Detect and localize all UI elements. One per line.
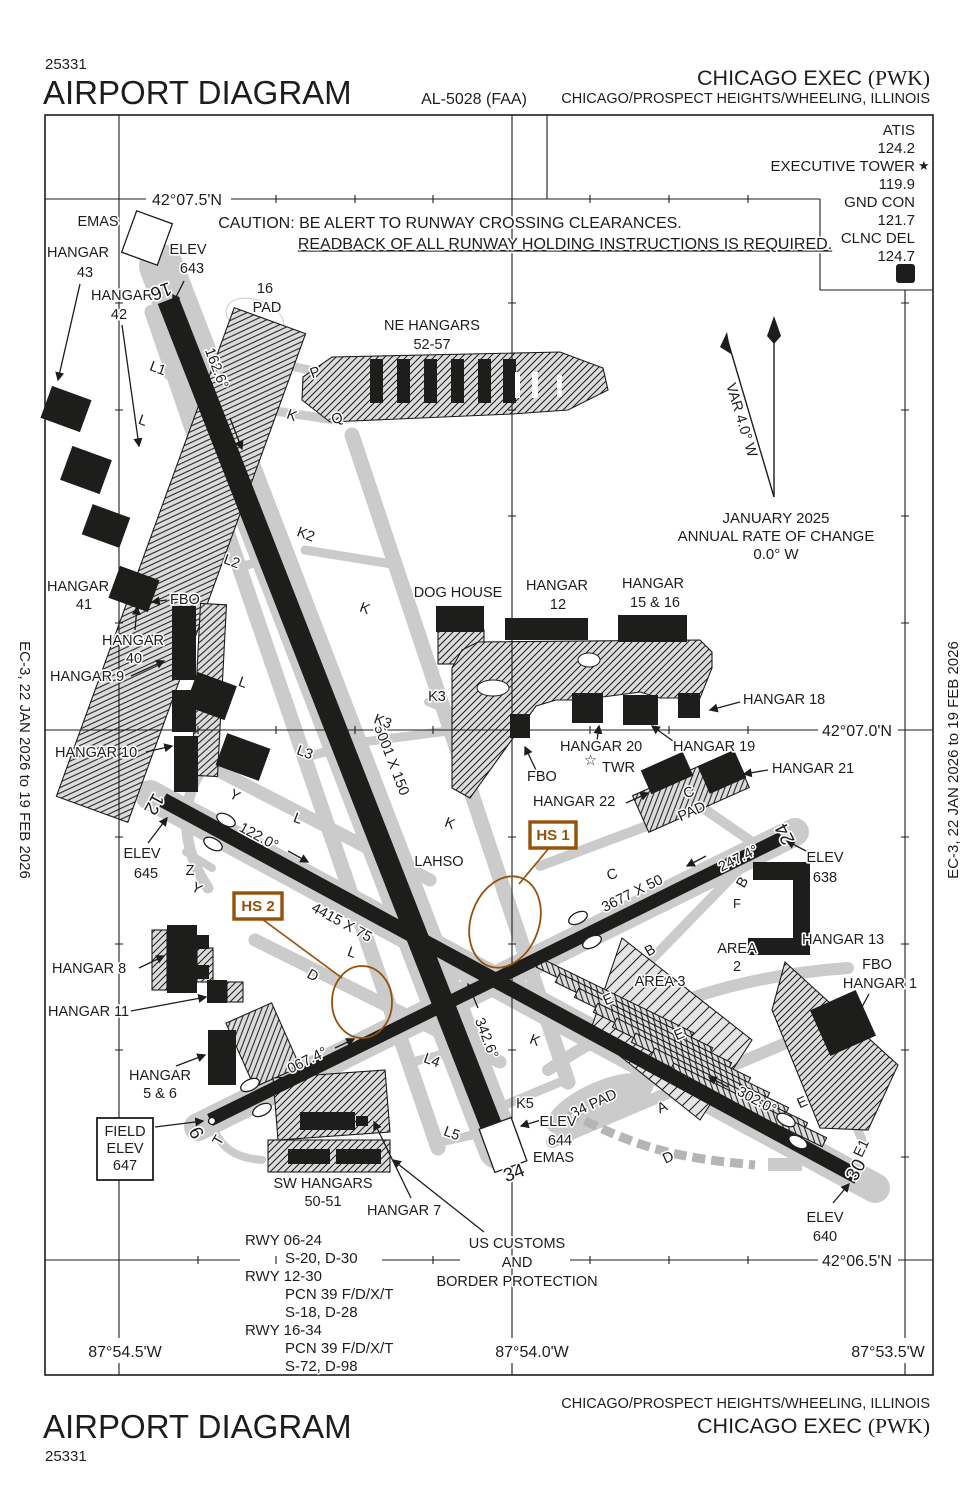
page-title: AIRPORT DIAGRAM <box>43 74 352 111</box>
runway-data-row: PCN 39 F/D/X/T <box>285 1340 393 1357</box>
hangar-11-label: HANGAR 11 <box>48 1004 129 1020</box>
chart-number-top: 25331 <box>45 56 87 73</box>
clearance-frequency: 124.7 <box>877 248 915 265</box>
emas-south-label: EMAS <box>533 1150 574 1166</box>
fbo-hangar-1-label-2: HANGAR 1 <box>843 976 917 992</box>
caution-line2: READBACK OF ALL RUNWAY HOLDING INSTRUCTI… <box>298 236 832 253</box>
taxiway-stub <box>768 1158 802 1171</box>
pad-16-label-1: 16 <box>257 281 273 297</box>
fbo-west-label: FBO <box>170 592 200 608</box>
page-header: 25331 AIRPORT DIAGRAM AL-5028 (FAA) CHIC… <box>43 56 930 111</box>
hangar-8-label: HANGAR 8 <box>52 961 126 977</box>
hangar-42-label-2: 42 <box>111 307 127 323</box>
footer-city-line: CHICAGO/PROSPECT HEIGHTS/WHEELING, ILLIN… <box>561 1396 930 1412</box>
area-2-label-2: 2 <box>733 959 741 975</box>
fbo-hangar-1-label-1: FBO <box>862 957 892 973</box>
runway-data-row: RWY 12-30 <box>245 1268 322 1285</box>
elev-643-value: 643 <box>180 261 204 277</box>
lon-87-53-5-label: 87°53.5'W <box>851 1344 925 1361</box>
runway-data-row: S-18, D-28 <box>285 1304 358 1321</box>
runway-data-block: RWY 06-24 S-20, D-30 RWY 12-30 PCN 39 F/… <box>245 1232 393 1375</box>
elev-640-value: 640 <box>813 1229 837 1245</box>
hangar-12-label-2: 12 <box>550 597 566 613</box>
variation-label: VAR 4.0° W <box>722 381 760 459</box>
hotspot-2-label: HS 2 <box>241 898 274 915</box>
city-line: CHICAGO/PROSPECT HEIGHTS/WHEELING, ILLIN… <box>561 91 930 107</box>
hangar-22-label: HANGAR 22 <box>533 794 615 810</box>
fbo-central-building <box>510 714 530 738</box>
hangar-13-building <box>748 862 810 955</box>
al-number: AL-5028 (FAA) <box>421 91 527 108</box>
tower-label: TWR <box>602 760 635 776</box>
airport-title: CHICAGO EXEC(PWK) <box>697 66 930 90</box>
hangar-40-label-2: 40 <box>126 651 142 667</box>
tower-frequency: 119.9 <box>879 176 915 193</box>
runway-data-row: S-72, D-98 <box>285 1358 358 1375</box>
taxiway-c-pad-connector <box>700 806 758 846</box>
runway-data-row: RWY 16-34 <box>245 1322 322 1339</box>
atis-label: ATIS <box>883 122 915 139</box>
field-elev-line1: FIELD <box>104 1124 145 1140</box>
hangar-19-building <box>623 695 658 725</box>
pad-16-label-2: PAD <box>253 300 282 316</box>
hangar-41-label-1: HANGAR <box>47 579 109 595</box>
ne-hangars-label-1: NE HANGARS <box>384 318 480 334</box>
twy-d-label: D <box>660 1148 676 1167</box>
lat-42-07-0-label: 42°07.0'N <box>822 723 892 740</box>
compass-rose: VAR 4.0° W JANUARY 2025 ANNUAL RATE OF C… <box>678 316 875 563</box>
twy-z-label: Z <box>186 863 195 879</box>
dog-house-label: DOG HOUSE <box>414 585 503 601</box>
footer-airport-title: CHICAGO EXEC(PWK) <box>697 1414 930 1438</box>
hangar-5-6-label-1: HANGAR <box>129 1068 191 1084</box>
hangar-20-label: HANGAR 20 <box>560 739 642 755</box>
hangar-43-label-2: 43 <box>77 265 93 281</box>
ne-hangars-label-2: 52-57 <box>413 337 450 353</box>
ground-frequency: 121.7 <box>877 212 915 229</box>
emas-north-label: EMAS <box>77 214 118 230</box>
twy-a-label: A <box>655 1099 671 1118</box>
compass-rate-label: ANNUAL RATE OF CHANGE <box>678 528 875 545</box>
hangar-15-16-label-2: 15 & 16 <box>630 595 680 611</box>
twy-k3-label: K3 <box>428 689 446 705</box>
hangar-15-16-label-1: HANGAR <box>622 576 684 592</box>
sw-hangars-label-1: SW HANGARS <box>273 1176 372 1192</box>
twy-b-label: B <box>734 874 753 890</box>
elev-644-word: ELEV <box>539 1114 576 1130</box>
hangar-43-label-1: HANGAR <box>47 245 109 261</box>
airport-name: CHICAGO EXEC <box>697 66 862 90</box>
hangar-41-label-2: 41 <box>76 597 92 613</box>
twy-l-label: L <box>345 944 358 962</box>
tower-star-symbol: ☆ <box>584 753 597 769</box>
lat-42-06-5-label: 42°06.5'N <box>822 1253 892 1270</box>
runway-data-row: S-20, D-30 <box>285 1250 358 1267</box>
tower-star-icon: ★ <box>918 158 930 173</box>
hangar-21-label: HANGAR 21 <box>772 761 854 777</box>
twy-k-label: K <box>527 1032 542 1050</box>
elev-643-word: ELEV <box>169 242 206 258</box>
elev-638-value: 638 <box>813 870 837 886</box>
chart-number-bottom: 25331 <box>45 1448 87 1465</box>
airport-diagram-canvas: HS 1 HS 2 FIELD ELEV 647 EMAS HANGAR 43 … <box>0 0 978 1500</box>
field-elevation-box: FIELD ELEV 647 <box>97 1118 153 1180</box>
footer-airport-name: CHICAGO EXEC <box>697 1414 862 1438</box>
elev-645-value: 645 <box>134 866 158 882</box>
runway-6-threshold-dot <box>209 1118 216 1125</box>
apron-cutout <box>477 680 509 696</box>
variation-arrowhead-icon <box>720 332 731 354</box>
footer-airport-identifier: (PWK) <box>868 1414 930 1438</box>
customs-label-3: BORDER PROTECTION <box>436 1274 597 1290</box>
fbo-central-label: FBO <box>527 769 557 785</box>
elev-644-value: 644 <box>548 1133 572 1149</box>
ground-control-label: GND CON <box>844 194 915 211</box>
elev-638-word: ELEV <box>806 850 843 866</box>
twy-k5-label: K5 <box>516 1096 534 1112</box>
caution-note: CAUTION: BE ALERT TO RUNWAY CROSSING CLE… <box>218 215 832 253</box>
north-arrowhead-icon <box>767 316 781 344</box>
twy-f-label: F <box>733 896 741 911</box>
elev-645-word: ELEV <box>123 846 160 862</box>
twy-e1-label: E1 <box>851 1137 873 1160</box>
twy-c-label: C <box>605 866 620 885</box>
taxiway-k5 <box>505 1080 565 1105</box>
lon-87-54-5-label: 87°54.5'W <box>88 1344 162 1361</box>
twy-k2-label: K2 <box>295 524 317 545</box>
compass-date: JANUARY 2025 <box>722 510 829 527</box>
hangar-42-label-1: HANGAR <box>91 288 153 304</box>
tower-name-label: EXECUTIVE TOWER <box>771 158 916 175</box>
sw-hangars-label-2: 50-51 <box>304 1194 341 1210</box>
apron-cutout <box>578 653 600 667</box>
dog-house-building <box>436 606 484 632</box>
page-footer: AIRPORT DIAGRAM 25331 CHICAGO/PROSPECT H… <box>43 1396 930 1465</box>
field-elev-line3: 647 <box>113 1158 137 1174</box>
twy-k-label: K <box>442 815 457 833</box>
footer-title: AIRPORT DIAGRAM <box>43 1408 352 1445</box>
airport-identifier: (PWK) <box>868 66 930 90</box>
lat-42-07-5-label: 42°07.5'N <box>152 192 222 209</box>
hangar-20-building <box>572 693 603 723</box>
lon-87-54-0-label: 87°54.0'W <box>495 1344 569 1361</box>
hangar-5-6-label-2: 5 & 6 <box>143 1086 177 1102</box>
atis-frequency: 124.2 <box>877 140 915 157</box>
hangar-10-label: HANGAR 10 <box>55 745 137 761</box>
datis-icon-letter: D <box>900 267 910 283</box>
customs-label-2: AND <box>502 1255 533 1271</box>
compass-rate-value: 0.0° W <box>753 546 799 563</box>
runway-data-row: RWY 06-24 <box>245 1232 322 1249</box>
comm-frequencies: ATIS 124.2 EXECUTIVE TOWER ★ 119.9 GND C… <box>771 122 930 283</box>
hangar-7-label: HANGAR 7 <box>367 1203 441 1219</box>
hangar-12-label-1: HANGAR <box>526 578 588 594</box>
hangar-12-building <box>505 618 588 640</box>
hangar-13-label: HANGAR 13 <box>802 932 884 948</box>
right-margin-effectivity-note: EC-3, 22 JAN 2026 to 19 FEB 2026 <box>945 641 962 879</box>
hangar-15-16-building <box>618 615 687 642</box>
twy-l-label: L <box>136 412 149 430</box>
hangar-40-label-1: HANGAR <box>102 633 164 649</box>
twy-k-label: K <box>357 600 372 618</box>
hotspot-1-label: HS 1 <box>536 827 569 844</box>
hangar-5-6-building <box>208 1030 236 1085</box>
hangar-18-building <box>678 693 700 718</box>
hangar-9-label: HANGAR 9 <box>50 669 124 685</box>
area-2-label-1: AREA <box>717 941 757 957</box>
elev-640-word: ELEV <box>806 1210 843 1226</box>
hangars-40-9-10 <box>172 606 198 792</box>
hangar-11-ramp <box>227 982 243 1002</box>
lahso-label: LAHSO <box>414 854 463 870</box>
hangar-11-building <box>207 980 227 1003</box>
hangar-18-label: HANGAR 18 <box>743 692 825 708</box>
twy-y-label: Y <box>226 787 243 806</box>
customs-label-1: US CUSTOMS <box>469 1236 565 1252</box>
caution-line1: CAUTION: BE ALERT TO RUNWAY CROSSING CLE… <box>218 215 682 232</box>
area-3-label: AREA 3 <box>635 974 686 990</box>
runway-data-row: PCN 39 F/D/X/T <box>285 1286 393 1303</box>
clearance-delivery-label: CLNC DEL <box>841 230 915 247</box>
field-elev-line2: ELEV <box>106 1141 143 1157</box>
twy-l-label: L <box>236 674 249 692</box>
left-margin-effectivity-note: EC-3, 22 JAN 2026 to 19 FEB 2026 <box>16 641 33 879</box>
airport-diagram-page: HS 1 HS 2 FIELD ELEV 647 EMAS HANGAR 43 … <box>0 0 978 1500</box>
hangar-19-label: HANGAR 19 <box>673 739 755 755</box>
